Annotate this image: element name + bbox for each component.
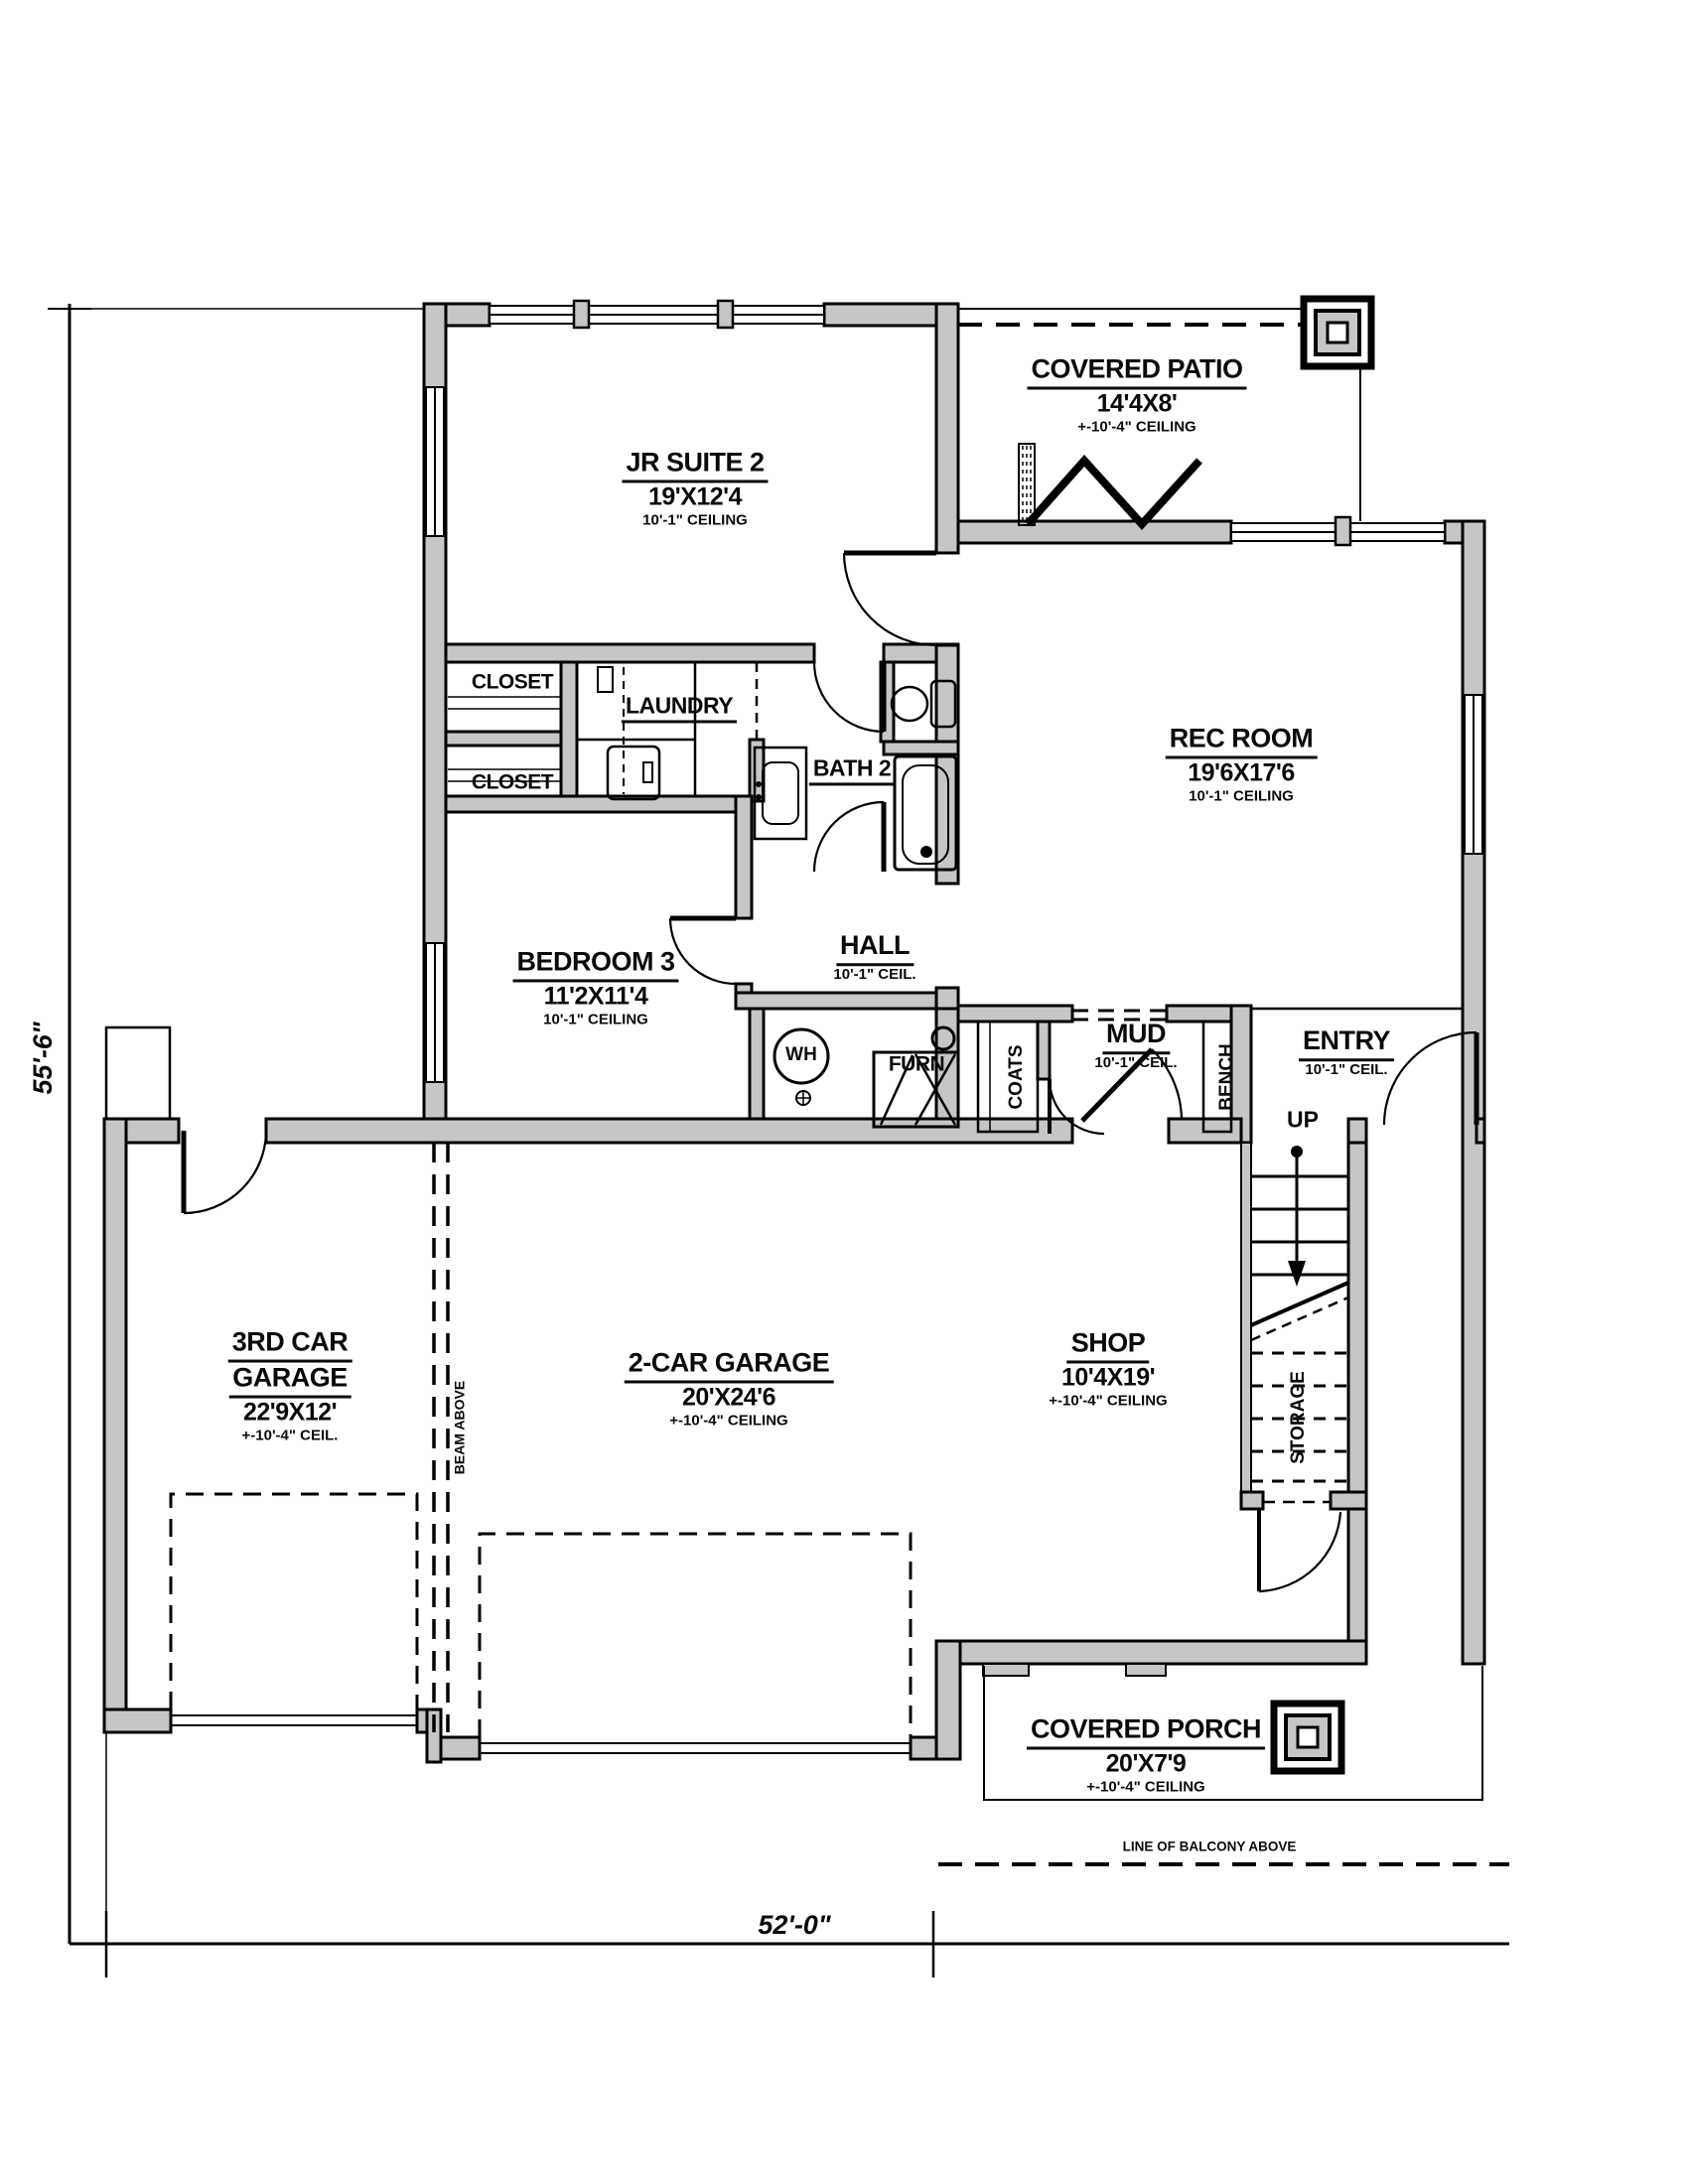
mud-ceiling: 10'-1" CEIL. bbox=[1094, 1054, 1177, 1072]
patio-post bbox=[1304, 299, 1371, 366]
floor-plan-drawing bbox=[0, 0, 1688, 2184]
storage-label: STORAGE bbox=[1288, 1371, 1310, 1464]
stoop-outline bbox=[106, 1027, 170, 1119]
overall-height-text: 55'-6" bbox=[28, 1022, 58, 1094]
bedroom3-door bbox=[670, 918, 736, 984]
garage3-name-line1: 3RD CAR bbox=[228, 1327, 352, 1363]
entry-name: ENTRY bbox=[1299, 1025, 1394, 1061]
room-label-rec-room: REC ROOM 19'6X17'6 10'-1" CEILING bbox=[1166, 723, 1318, 805]
bench-text: BENCH bbox=[1216, 1043, 1237, 1111]
dimension-height-label: 55'-6" bbox=[28, 1022, 60, 1094]
covered-patio-size: 14'4X8' bbox=[1027, 389, 1246, 419]
shop-name: SHOP bbox=[1067, 1327, 1150, 1363]
coats-text: COATS bbox=[1006, 1044, 1027, 1109]
rec-room-size: 19'6X17'6 bbox=[1166, 758, 1318, 788]
room-label-bath2: BATH 2 bbox=[809, 754, 895, 785]
room-label-jr-suite: JR SUITE 2 19'X12'4 10'-1" CEILING bbox=[622, 447, 768, 529]
water-heater bbox=[774, 1029, 828, 1105]
closet-upper-name: CLOSET bbox=[472, 671, 553, 694]
covered-porch-ceiling: +-10'-4" CEILING bbox=[1027, 1779, 1265, 1797]
water-heater-label: WH bbox=[785, 1044, 817, 1066]
beam-above-text: BEAM ABOVE bbox=[452, 1381, 468, 1474]
room-label-entry: ENTRY 10'-1" CEIL. bbox=[1299, 1025, 1394, 1079]
room-label-bedroom3: BEDROOM 3 11'2X11'4 10'-1" CEILING bbox=[512, 946, 678, 1028]
doors bbox=[184, 553, 1477, 1591]
porch-post bbox=[1274, 1704, 1341, 1771]
room-label-closet-upper: CLOSET bbox=[472, 671, 553, 696]
garage3-ceiling: +-10'-4" CEIL. bbox=[228, 1428, 352, 1445]
covered-porch-name: COVERED PORCH bbox=[1027, 1713, 1265, 1749]
rec-room-name: REC ROOM bbox=[1166, 723, 1318, 758]
bath-door-upper bbox=[814, 662, 884, 732]
room-label-closet-lower: CLOSET bbox=[472, 771, 553, 796]
bath-door-lower bbox=[814, 802, 884, 872]
stairs-up-label: UP bbox=[1287, 1106, 1319, 1133]
closet-lower-name: CLOSET bbox=[472, 771, 553, 794]
room-label-covered-porch: COVERED PORCH 20'X7'9 +-10'-4" CEILING bbox=[1027, 1713, 1265, 1796]
storage-text: STORAGE bbox=[1288, 1371, 1309, 1464]
balcony-text: LINE OF BALCONY ABOVE bbox=[1123, 1840, 1297, 1854]
floor-edges bbox=[106, 697, 1482, 1800]
garage2-size: 20'X24'6 bbox=[625, 1383, 834, 1413]
room-label-laundry: LAUNDRY bbox=[622, 692, 737, 723]
beam-above-label: BEAM ABOVE bbox=[452, 1381, 471, 1474]
garage2-name: 2-CAR GARAGE bbox=[625, 1347, 834, 1383]
dimension-width-label: 52'-0" bbox=[758, 1910, 830, 1942]
covered-porch-size: 20'X7'9 bbox=[1027, 1749, 1265, 1779]
hall-ceiling: 10'-1" CEIL. bbox=[833, 966, 915, 984]
room-label-mud: MUD 10'-1" CEIL. bbox=[1094, 1019, 1177, 1072]
room-label-2car-garage: 2-CAR GARAGE 20'X24'6 +-10'-4" CEILING bbox=[625, 1347, 834, 1430]
bench-label: BENCH bbox=[1216, 1043, 1238, 1111]
balcony-note: LINE OF BALCONY ABOVE bbox=[1123, 1839, 1297, 1857]
room-label-3rd-car-garage: 3RD CAR GARAGE 22'9X12' +-10'-4" CEIL. bbox=[228, 1327, 352, 1445]
bedroom3-ceiling: 10'-1" CEILING bbox=[512, 1012, 678, 1029]
hall-name: HALL bbox=[836, 930, 914, 966]
garage3-name-line2: GARAGE bbox=[228, 1362, 352, 1398]
bedroom3-size: 11'2X11'4 bbox=[512, 982, 678, 1012]
laundry-name: LAUNDRY bbox=[622, 692, 737, 723]
garage-doors bbox=[171, 1494, 911, 1753]
patio-zigzag bbox=[1028, 461, 1199, 524]
jr-suite-size: 19'X12'4 bbox=[622, 482, 768, 512]
stairs-up-arrow bbox=[1288, 1147, 1306, 1288]
room-label-covered-patio: COVERED PATIO 14'4X8' +-10'-4" CEILING bbox=[1027, 353, 1246, 436]
garage2-ceiling: +-10'-4" CEILING bbox=[625, 1413, 834, 1431]
covered-patio-name: COVERED PATIO bbox=[1027, 353, 1246, 389]
bedroom3-name: BEDROOM 3 bbox=[512, 946, 678, 982]
jr-suite-name: JR SUITE 2 bbox=[622, 447, 768, 482]
covered-patio-ceiling: +-10'-4" CEILING bbox=[1027, 419, 1246, 437]
storage-door bbox=[1259, 1509, 1340, 1591]
furn-text: FURN bbox=[889, 1053, 944, 1076]
mud-name: MUD bbox=[1102, 1019, 1170, 1054]
wh-text: WH bbox=[785, 1044, 817, 1065]
furnace-label: FURN bbox=[889, 1053, 944, 1078]
shop-ceiling: +-10'-4" CEILING bbox=[1049, 1393, 1167, 1411]
floor-plan: JR SUITE 2 19'X12'4 10'-1" CEILING COVER… bbox=[0, 0, 1688, 2184]
rec-room-ceiling: 10'-1" CEILING bbox=[1166, 788, 1318, 806]
shop-size: 10'4X19' bbox=[1049, 1363, 1167, 1393]
entry-ceiling: 10'-1" CEIL. bbox=[1299, 1061, 1394, 1079]
up-text: UP bbox=[1287, 1106, 1319, 1132]
laundry-appliances bbox=[577, 662, 695, 799]
jr-suite-door bbox=[844, 553, 936, 645]
bath2-name: BATH 2 bbox=[809, 754, 895, 785]
room-label-hall: HALL 10'-1" CEIL. bbox=[833, 930, 915, 984]
room-label-shop: SHOP 10'4X19' +-10'-4" CEILING bbox=[1049, 1327, 1167, 1410]
jr-suite-ceiling: 10'-1" CEILING bbox=[622, 512, 768, 530]
garage3-size: 22'9X12' bbox=[228, 1398, 352, 1428]
garage-man-door bbox=[184, 1131, 266, 1213]
coats-label: COATS bbox=[1006, 1044, 1028, 1109]
overall-width-text: 52'-0" bbox=[758, 1910, 830, 1940]
